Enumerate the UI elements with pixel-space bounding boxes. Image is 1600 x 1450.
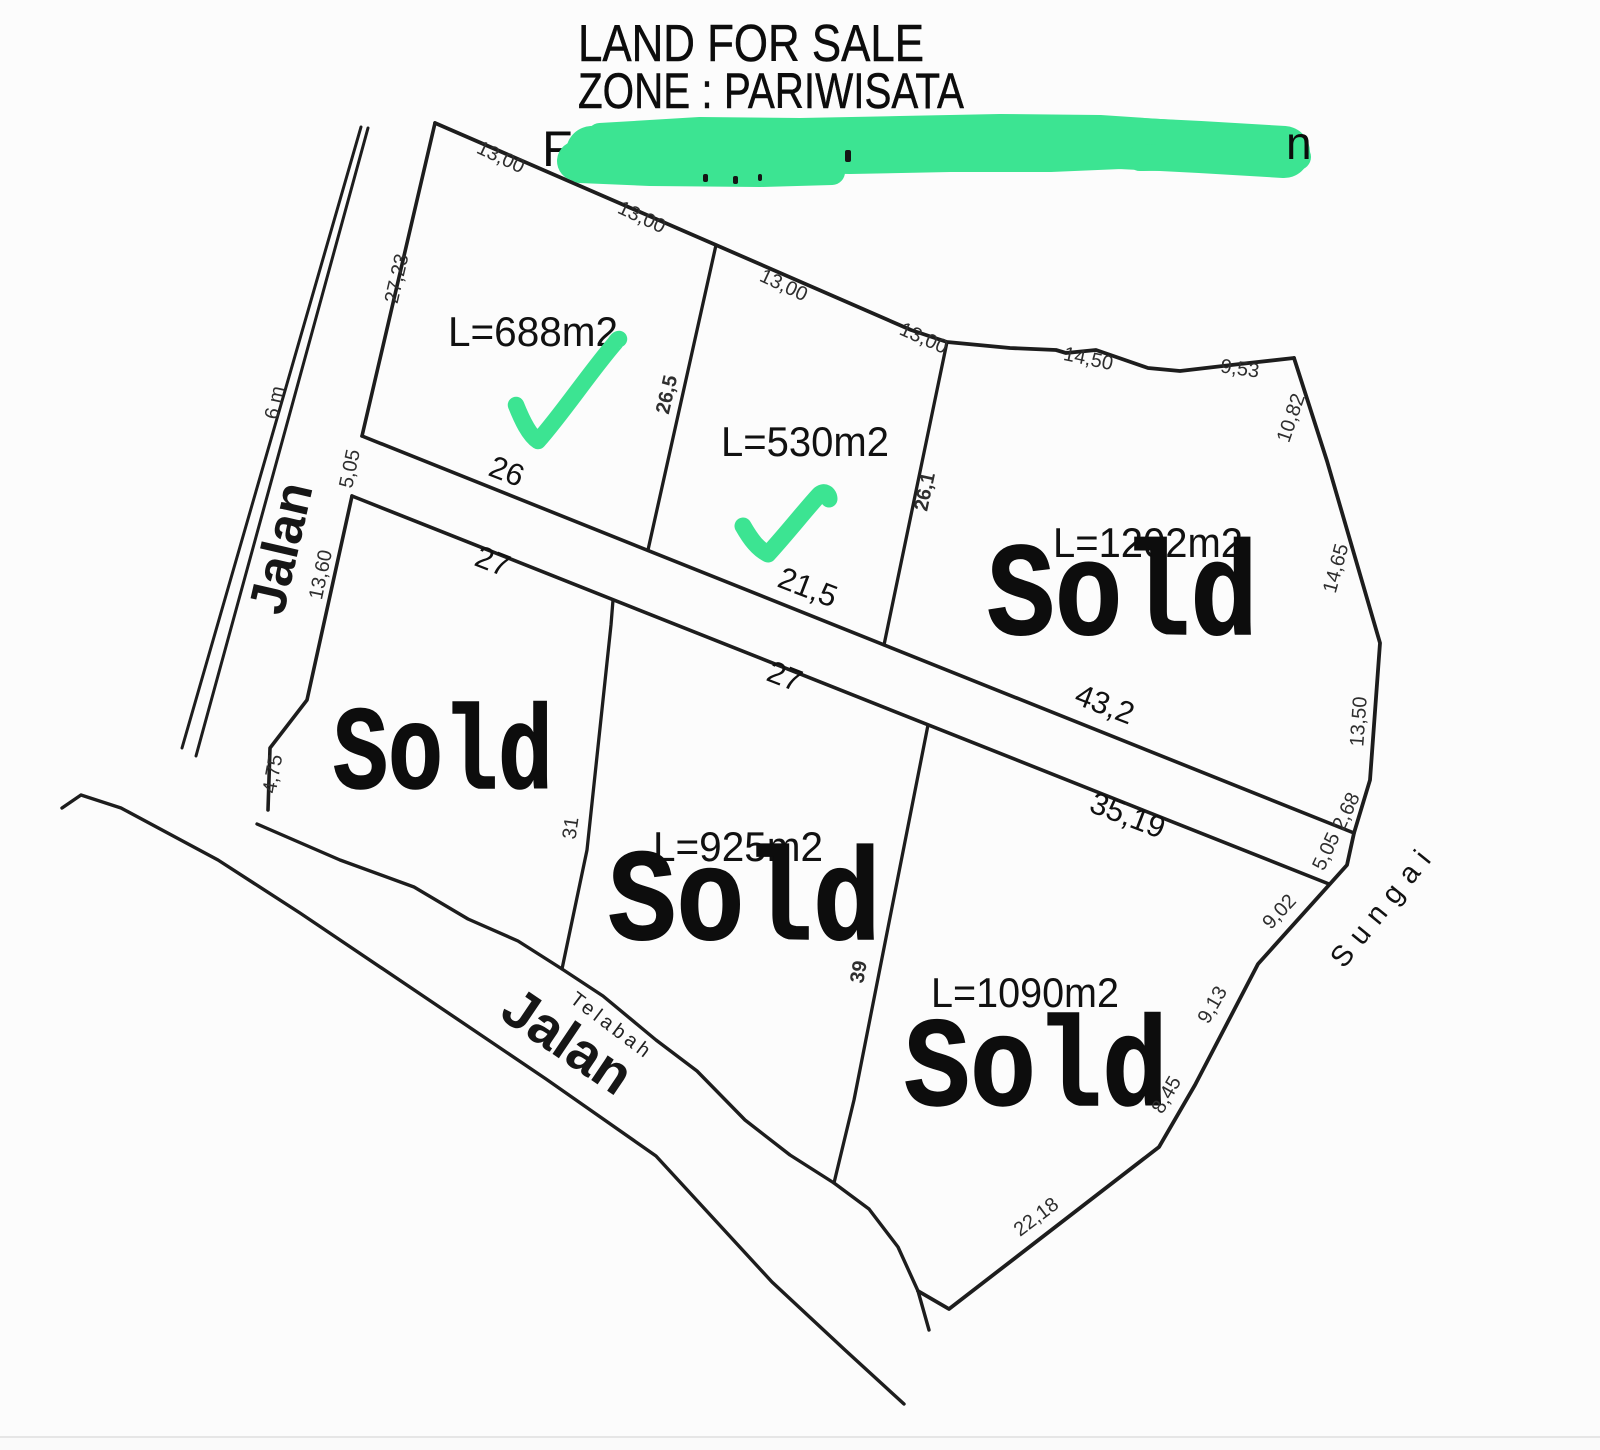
svg-text:L=688m2: L=688m2 xyxy=(448,308,618,355)
svg-text:ZONE : PARIWISATA: ZONE : PARIWISATA xyxy=(578,63,965,119)
svg-text:n: n xyxy=(1286,117,1312,169)
svg-text:Sold: Sold xyxy=(904,999,1168,1144)
svg-text:13,50: 13,50 xyxy=(1346,696,1371,747)
svg-text:31: 31 xyxy=(559,816,584,841)
svg-text:L=530m2: L=530m2 xyxy=(721,418,889,465)
svg-text:39: 39 xyxy=(846,959,872,985)
svg-text:Sold: Sold xyxy=(608,830,881,978)
svg-text:Sold: Sold xyxy=(987,524,1258,675)
svg-text:Sold: Sold xyxy=(333,690,553,825)
